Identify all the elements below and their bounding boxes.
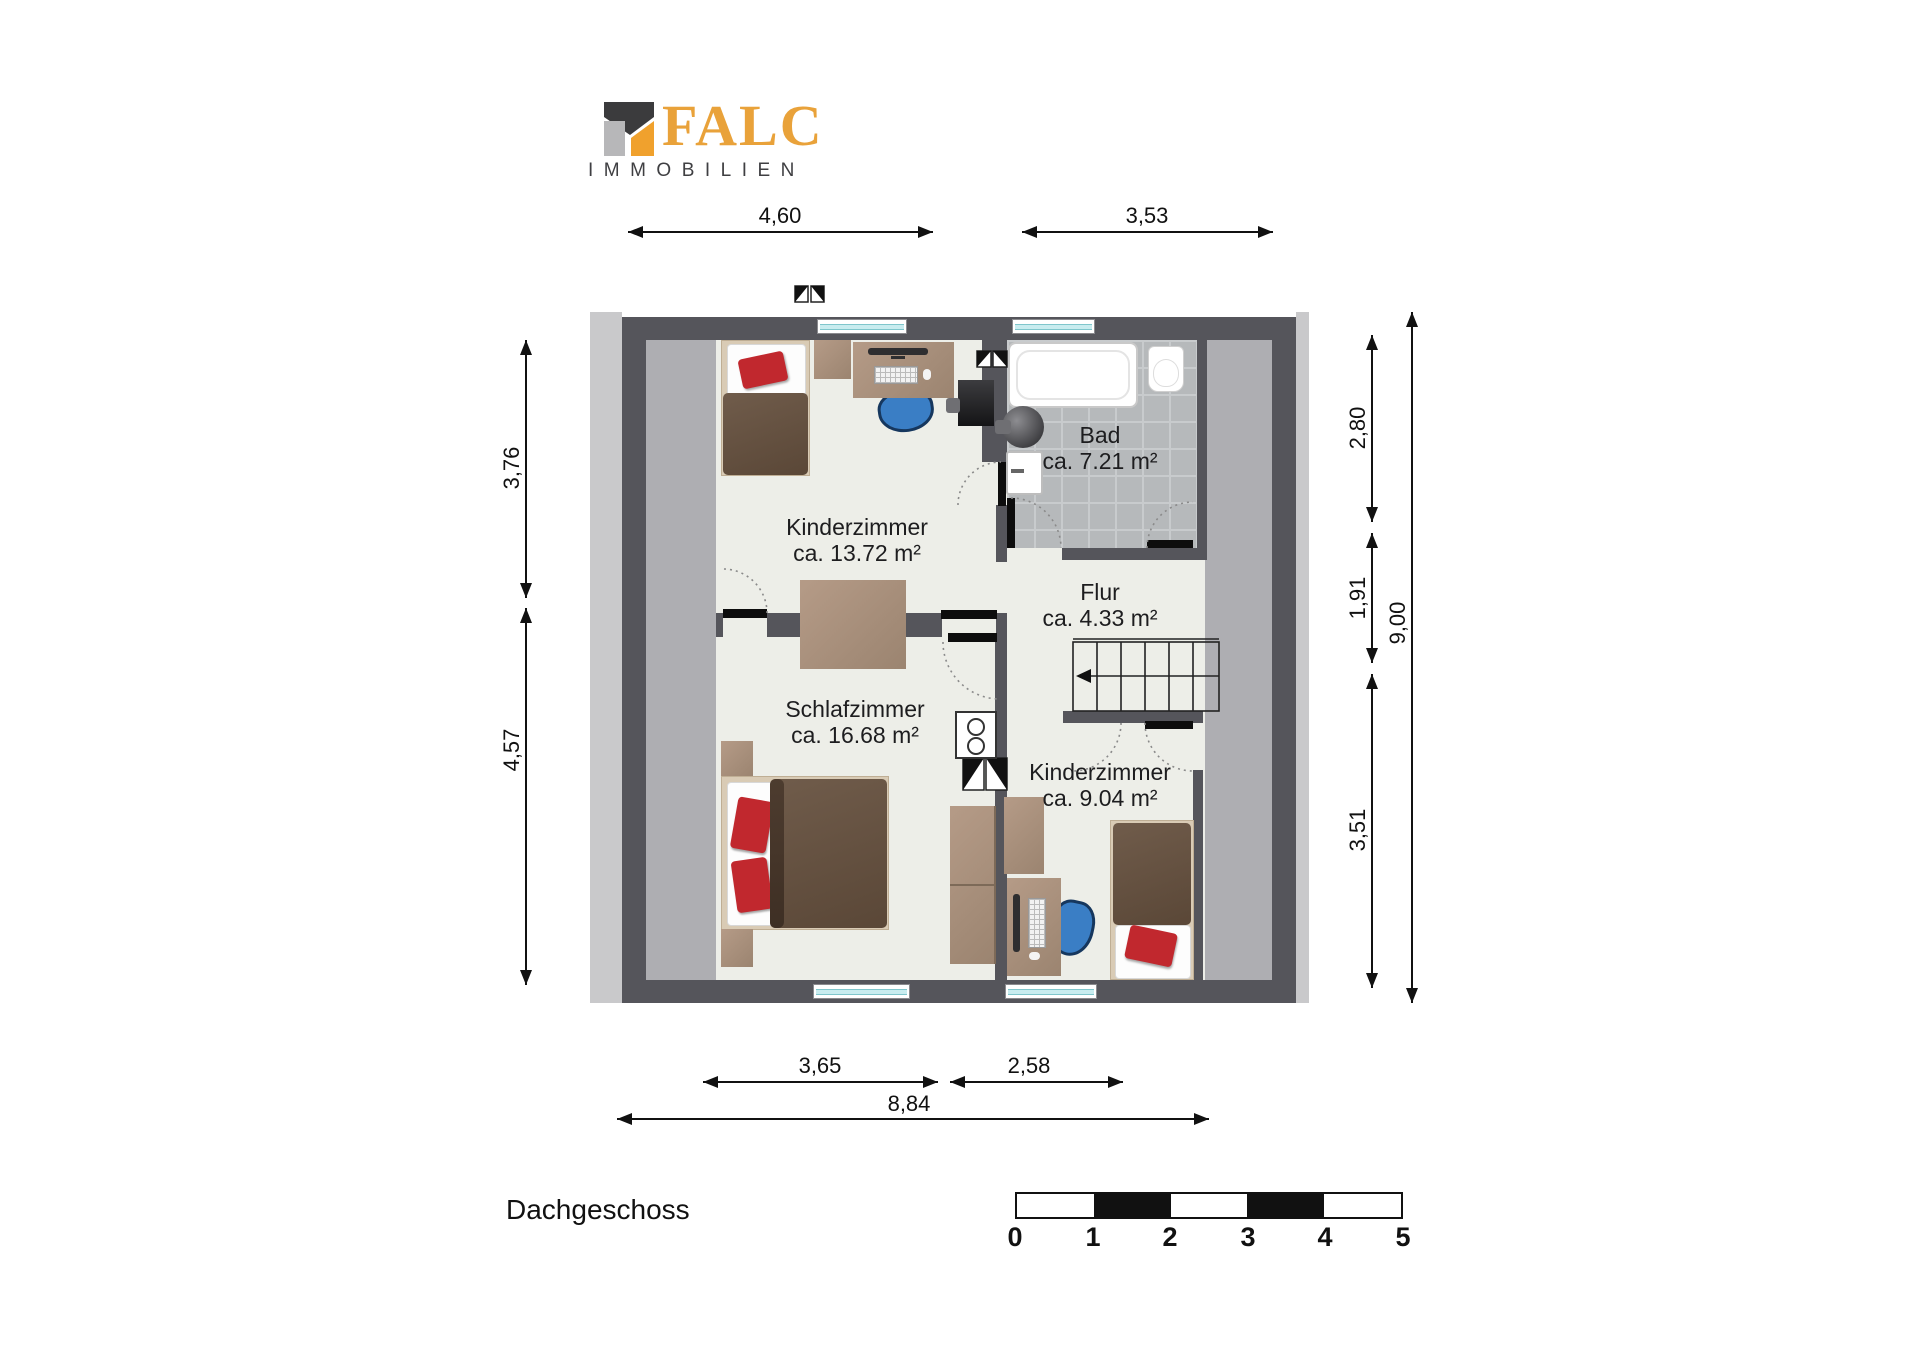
- dim-label-top-right: 3,53: [1097, 203, 1197, 229]
- door-leaf-bad-left: [1007, 498, 1015, 548]
- door-leaf-bad-right: [1147, 540, 1193, 548]
- dim-line-right-middle: [1371, 533, 1373, 663]
- room-name: Kinderzimmer: [980, 759, 1220, 785]
- dim-label-bottom-right: 2,58: [979, 1053, 1079, 1079]
- table-schlafzimmer: [800, 580, 906, 669]
- dim-line-right-total: [1411, 312, 1413, 1003]
- dim-label-right-upper: 2,80: [1345, 378, 1371, 478]
- chimney-unit: [958, 380, 994, 426]
- desk-kinderzimmer1: [853, 342, 954, 398]
- room-name: Flur: [980, 579, 1220, 605]
- dim-line-top-left: [628, 231, 933, 233]
- arrow-icon: [520, 970, 532, 985]
- window-kinderzimmer2-bottom: [1005, 984, 1097, 999]
- dim-line-left-lower: [525, 608, 527, 985]
- arrow-icon: [1366, 674, 1378, 689]
- room-label-bad: Bad ca. 7.21 m²: [980, 422, 1220, 474]
- arrow-icon: [1108, 1076, 1123, 1088]
- window-schlafzimmer-bottom: [813, 984, 910, 999]
- bathtub: [1008, 342, 1138, 408]
- brand-name: FALC: [662, 92, 824, 159]
- falc-logo-mark: [604, 102, 654, 156]
- room-name: Bad: [980, 422, 1220, 448]
- dim-line-left-upper: [525, 340, 527, 598]
- dim-label-right-middle: 1,91: [1345, 548, 1371, 648]
- arrow-icon: [520, 340, 532, 355]
- chimney-pipe: [946, 398, 960, 413]
- arrow-icon: [1366, 973, 1378, 988]
- dim-label-top-left: 4,60: [730, 203, 830, 229]
- room-area: ca. 16.68 m²: [735, 722, 975, 748]
- dim-line-right-upper: [1371, 335, 1373, 522]
- room-area: ca. 7.21 m²: [980, 448, 1220, 474]
- arrow-icon: [1366, 533, 1378, 548]
- scale-tick-4: 4: [1305, 1222, 1345, 1253]
- nightstand-bottom: [721, 929, 753, 967]
- arrow-icon: [950, 1076, 965, 1088]
- arrow-icon: [1194, 1113, 1209, 1125]
- arrow-icon: [1406, 312, 1418, 327]
- dim-label-left-upper: 3,76: [499, 418, 525, 518]
- dim-label-right-lower: 3,51: [1345, 780, 1371, 880]
- floorplan-page: FALC IMMOBILIEN: [0, 0, 1920, 1357]
- wardrobe-schlafzimmer: [950, 806, 996, 964]
- room-name: Kinderzimmer: [737, 514, 977, 540]
- wall-bad-bottom: [1062, 548, 1207, 560]
- arrow-icon: [1406, 988, 1418, 1003]
- floor-name-label: Dachgeschoss: [506, 1194, 690, 1226]
- roof-edge-left: [590, 312, 622, 1003]
- dim-label-left-lower: 4,57: [499, 700, 525, 800]
- dim-label-bottom-left: 3,65: [770, 1053, 870, 1079]
- dim-line-right-lower: [1371, 674, 1373, 988]
- window-bad-top: [1012, 319, 1095, 334]
- wall-stub-flur: [996, 505, 1007, 562]
- arrow-icon: [1366, 648, 1378, 663]
- scale-tick-2: 2: [1150, 1222, 1190, 1253]
- scale-tick-5: 5: [1383, 1222, 1423, 1253]
- door-leaf-schlaf-b: [948, 633, 997, 642]
- arrow-icon: [617, 1113, 632, 1125]
- wall-left: [622, 317, 646, 1003]
- shelf-kinderzimmer1: [814, 340, 851, 379]
- arrow-icon: [628, 226, 643, 238]
- roof-edge-right: [1296, 312, 1309, 1003]
- brand-subtitle: IMMOBILIEN: [588, 160, 805, 182]
- room-label-schlafzimmer: Schlafzimmer ca. 16.68 m²: [735, 696, 975, 748]
- wall-kinder1-schlaf-a: [716, 613, 723, 637]
- arrow-icon: [918, 226, 933, 238]
- door-leaf-kinder1: [723, 609, 767, 618]
- dim-line-bottom-total: [617, 1118, 1209, 1120]
- scale-bar: [1015, 1192, 1403, 1219]
- room-area: ca. 4.33 m²: [980, 605, 1220, 631]
- arrow-icon: [520, 583, 532, 598]
- bed-kinderzimmer2: [1110, 820, 1194, 980]
- arrow-icon: [1366, 335, 1378, 350]
- dim-line-bottom-right: [950, 1081, 1123, 1083]
- wall-top: [622, 317, 1296, 340]
- arrow-icon: [1022, 226, 1037, 238]
- room-area: ca. 9.04 m²: [980, 785, 1220, 811]
- scale-tick-3: 3: [1228, 1222, 1268, 1253]
- room-name: Schlafzimmer: [735, 696, 975, 722]
- door-leaf-kinder2: [1145, 721, 1193, 729]
- bed-kinderzimmer1: [721, 340, 810, 476]
- arrow-icon: [703, 1076, 718, 1088]
- scale-tick-0: 0: [995, 1222, 1035, 1253]
- arrow-icon: [520, 608, 532, 623]
- room-label-kinderzimmer-2: Kinderzimmer ca. 9.04 m²: [980, 759, 1220, 811]
- room-area: ca. 13.72 m²: [737, 540, 977, 566]
- low-headroom-left: [646, 340, 716, 980]
- dim-label-bottom-total: 8,84: [859, 1091, 959, 1117]
- arrow-icon: [923, 1076, 938, 1088]
- toilet: [1148, 346, 1184, 392]
- dim-line-top-right: [1022, 231, 1273, 233]
- arrow-icon: [1366, 507, 1378, 522]
- room-label-flur: Flur ca. 4.33 m²: [980, 579, 1220, 631]
- dim-line-bottom-left: [703, 1081, 938, 1083]
- dim-label-right-total: 9,00: [1385, 573, 1411, 673]
- scale-tick-1: 1: [1073, 1222, 1113, 1253]
- arrow-icon: [1258, 226, 1273, 238]
- desk-kinderzimmer2: [1007, 878, 1061, 976]
- wall-right: [1272, 317, 1296, 1003]
- bed-schlafzimmer: [721, 776, 889, 930]
- room-label-kinderzimmer-1: Kinderzimmer ca. 13.72 m²: [737, 514, 977, 566]
- window-kinderzimmer1-top: [817, 319, 907, 334]
